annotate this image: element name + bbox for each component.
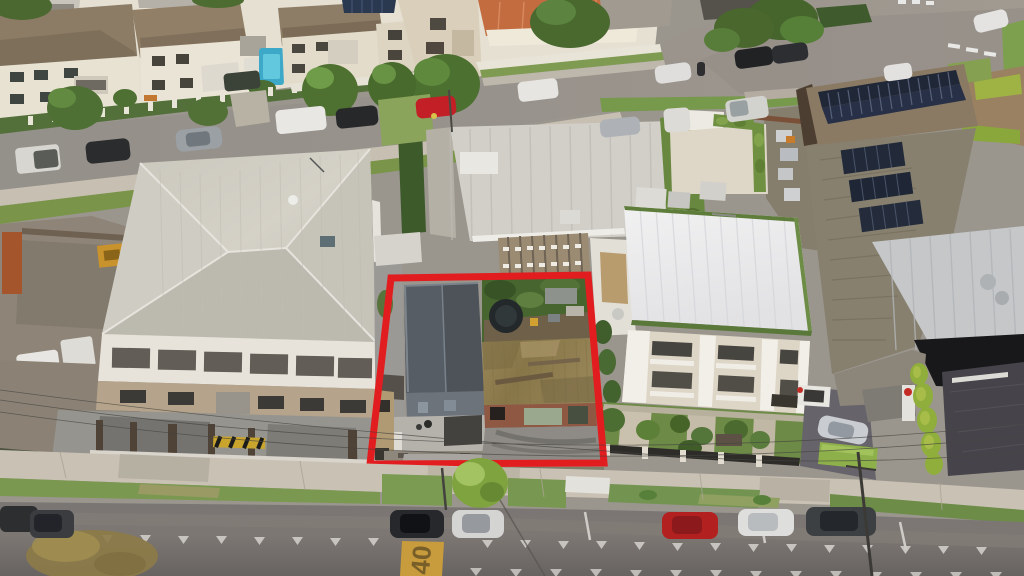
svg-text:40: 40 bbox=[405, 544, 437, 575]
